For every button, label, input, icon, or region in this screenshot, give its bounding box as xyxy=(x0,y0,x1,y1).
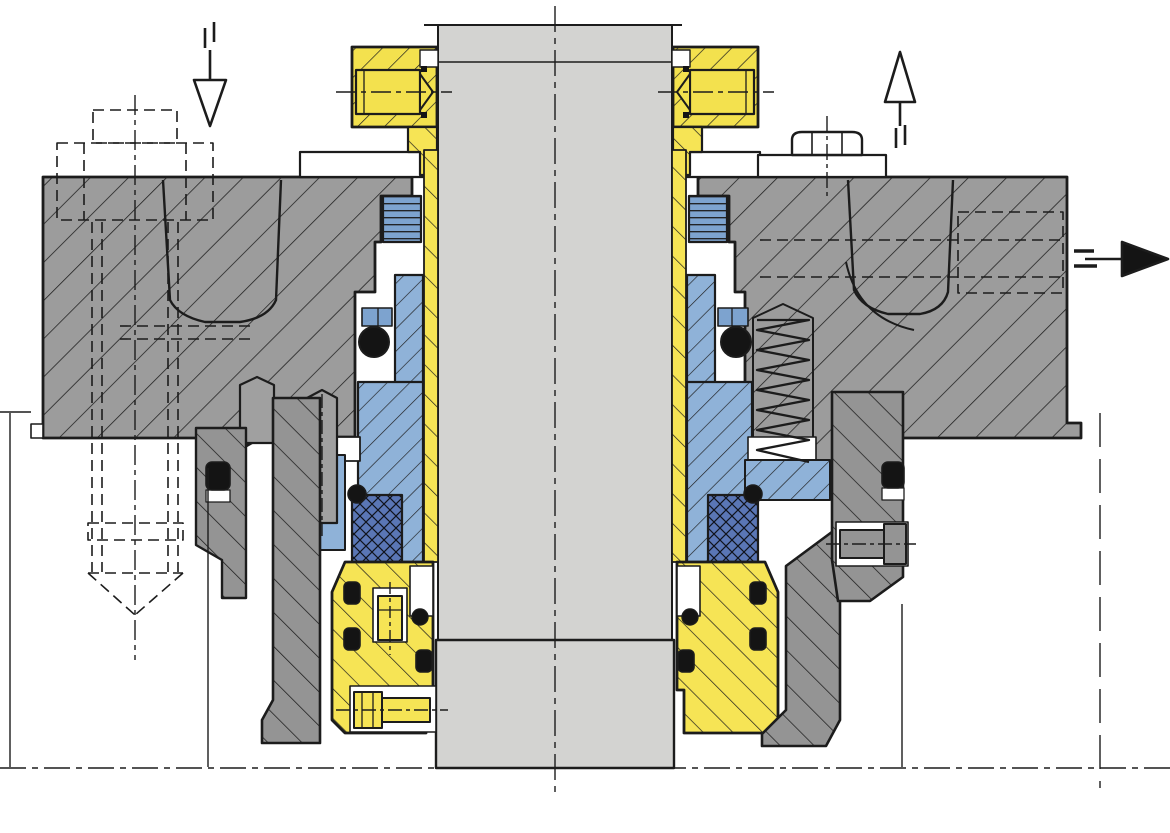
gland-plate-left xyxy=(300,152,424,177)
gland-right-oring-3 xyxy=(678,650,694,672)
packing-seal-left xyxy=(348,485,366,503)
pump-shaft xyxy=(424,25,682,768)
collar-right-seat-mark-2 xyxy=(683,112,689,118)
seal-cross-section-diagram xyxy=(0,0,1170,833)
threaded-plug-right xyxy=(689,196,727,242)
flow-out-arrowhead-icon xyxy=(885,52,915,102)
gland-left-oring-1 xyxy=(344,582,360,604)
gland-right-pin-seat xyxy=(682,609,698,625)
gland-left xyxy=(332,562,436,733)
packing-seal-right xyxy=(744,485,762,503)
drain-arrowhead-icon xyxy=(1122,242,1168,276)
packing-wedge-left xyxy=(352,495,402,562)
shaft-sleeve-left xyxy=(424,150,438,562)
seal-ring-left-upper xyxy=(395,275,423,385)
gland-left-oring-3 xyxy=(416,650,432,672)
drain-arrow xyxy=(1074,242,1168,276)
retainer-left xyxy=(362,308,392,326)
bolt-washer-plate xyxy=(758,155,886,177)
clamp-left-notch xyxy=(206,490,230,502)
housing-foot-notch xyxy=(31,424,43,438)
o-ring-right xyxy=(721,327,751,357)
gland-right-oring-1 xyxy=(750,582,766,604)
shaft-sleeve-right xyxy=(672,150,686,562)
retainer-right xyxy=(718,308,748,326)
threaded-plug-left xyxy=(383,196,421,242)
clamp-right-notch xyxy=(882,488,904,500)
collar-right-seat-mark-1 xyxy=(683,66,689,72)
gland-left-pin-seat xyxy=(412,609,428,625)
gland-right xyxy=(677,562,778,733)
flow-out-arrow xyxy=(885,52,915,148)
collar-left-seat-mark-1 xyxy=(421,66,427,72)
seal-ring-right-upper xyxy=(687,275,715,385)
clamp-left xyxy=(196,398,320,743)
clamp-left-step xyxy=(196,428,246,598)
gland-right-oring-2 xyxy=(750,628,766,650)
collar-left-notch xyxy=(420,50,438,67)
engineering-drawing-canvas xyxy=(0,0,1170,833)
clamp-left-oring xyxy=(206,462,230,490)
flow-in-arrow xyxy=(194,22,226,126)
clamp-right-oring xyxy=(882,462,904,488)
flow-in-arrowhead-icon xyxy=(194,80,226,126)
gland-plate-right xyxy=(686,152,760,177)
clamp-left-plate xyxy=(262,398,320,743)
collar-right-notch xyxy=(672,50,690,67)
gland-left-oring-2 xyxy=(344,628,360,650)
drive-collar-right xyxy=(672,47,758,127)
collar-left-seat-mark-2 xyxy=(421,112,427,118)
packing-wedge-right xyxy=(708,495,758,562)
o-ring-left xyxy=(359,327,389,357)
drive-collar-left xyxy=(352,47,438,127)
